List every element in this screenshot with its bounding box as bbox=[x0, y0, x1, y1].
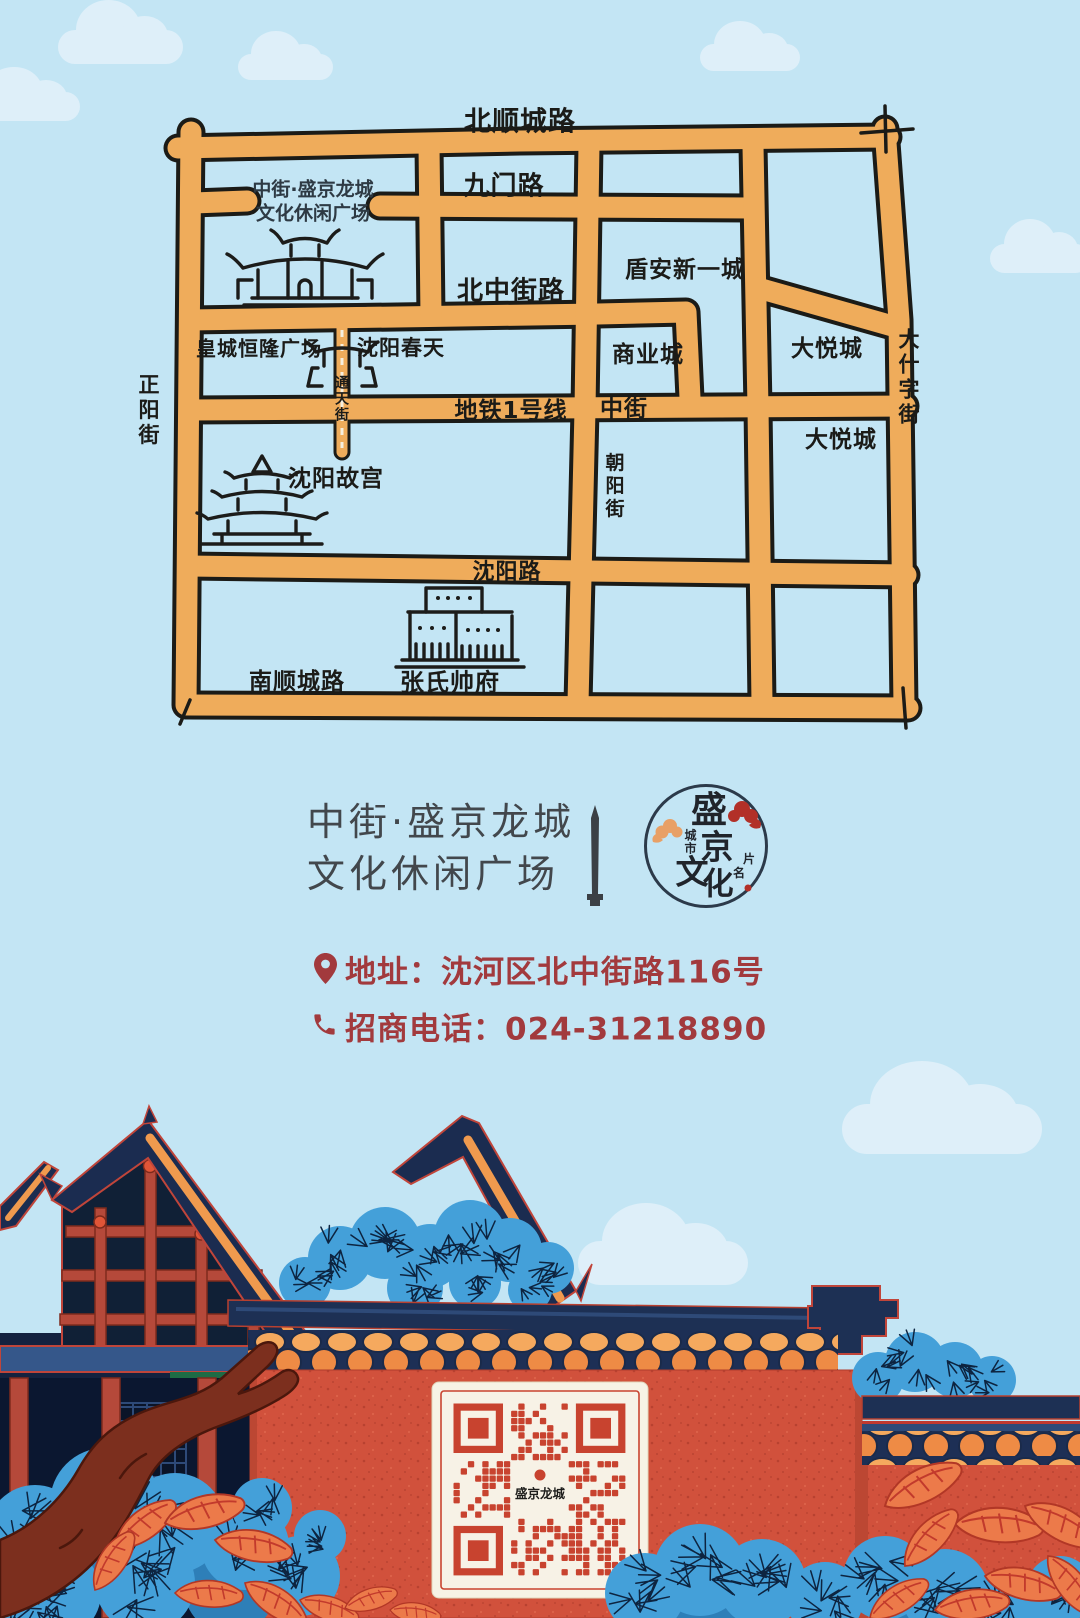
map-label-shangyecheng: 商业城 bbox=[612, 335, 684, 369]
qr-code: 盛京龙城 bbox=[432, 1382, 648, 1598]
location-pin-icon bbox=[314, 953, 337, 984]
map-label-plaza-line2: 文化休闲广场 bbox=[256, 199, 370, 226]
logo-small-pian: 片 bbox=[743, 853, 755, 865]
mansion-windows bbox=[418, 596, 500, 632]
map-label-dayuecheng-north: 大悦城 bbox=[791, 329, 863, 363]
map-label-zhongjie: 中街 bbox=[600, 389, 648, 423]
dot-ornament-icon bbox=[743, 883, 753, 893]
map-label-henglong: 皇城恒隆广场 bbox=[196, 333, 322, 362]
palace-scene-illustration: 盛京龙城 bbox=[0, 1078, 1080, 1618]
map-label-dunanxinyicheng: 盾安新一城 bbox=[625, 250, 745, 284]
map-label-shenyanglu: 沈阳路 bbox=[472, 554, 541, 586]
map-label-chaoyangjie: 朝阳街 bbox=[601, 453, 628, 522]
phone-text: 招商电话：024-31218890 bbox=[345, 1004, 767, 1049]
logo-char-sheng: 盛 bbox=[691, 793, 727, 829]
qr-center-seal bbox=[535, 1470, 546, 1481]
map-label-plaza-line1: 中街·盛京龙城 bbox=[252, 175, 373, 202]
map-label-dayuecheng-south: 大悦城 bbox=[805, 420, 877, 454]
map-label-dashizijie: 大什字街 bbox=[893, 328, 923, 428]
map-label-beishunchenglu: 北顺城路 bbox=[464, 100, 576, 139]
poster-title-line1: 中街·盛京龙城 bbox=[307, 791, 575, 846]
logo-small-chengshi: 城市 bbox=[684, 829, 696, 855]
logo-small-ming: 名 bbox=[733, 867, 745, 879]
pillar-divider-icon bbox=[586, 802, 604, 914]
address-text: 地址：沈河区北中街路116号 bbox=[345, 947, 765, 992]
poster: 北顺城路 九门路 北中街路 盾安新一城 皇城恒隆广场 沈阳春天 商业城 大悦城 … bbox=[0, 0, 1080, 1618]
map-label-metro1: 地铁1号线 bbox=[454, 391, 567, 425]
map-label-zhengyangjie: 正阳街 bbox=[133, 374, 163, 449]
shengjing-culture-seal-logo: 盛 京 文 化 城市 名 片 bbox=[644, 784, 768, 908]
map-label-jiumenlu: 九门路 bbox=[463, 166, 544, 203]
map-label-gugong: 沈阳故宫 bbox=[288, 459, 384, 493]
mansion-drawing bbox=[396, 588, 524, 667]
map-label-tongtianjie: 通天街 bbox=[331, 375, 351, 423]
qr-center-text: 盛京龙城 bbox=[515, 1486, 566, 1501]
map-label-zhangshishuaifu: 张氏帅府 bbox=[400, 663, 500, 698]
plaza-gate-drawing bbox=[227, 230, 383, 305]
map-label-beizhongjielu: 北中街路 bbox=[457, 271, 565, 308]
cloud-ornament-icon bbox=[651, 817, 685, 847]
map-label-nanshunchenglu: 南顺城路 bbox=[249, 662, 345, 696]
map-label-shenyangchuntian: 沈阳春天 bbox=[357, 332, 445, 362]
poster-title-line2: 文化休闲广场 bbox=[307, 843, 559, 898]
logo-char-hua: 化 bbox=[703, 870, 734, 901]
phone-icon bbox=[311, 1011, 338, 1038]
pine-tree bbox=[852, 1329, 1016, 1404]
